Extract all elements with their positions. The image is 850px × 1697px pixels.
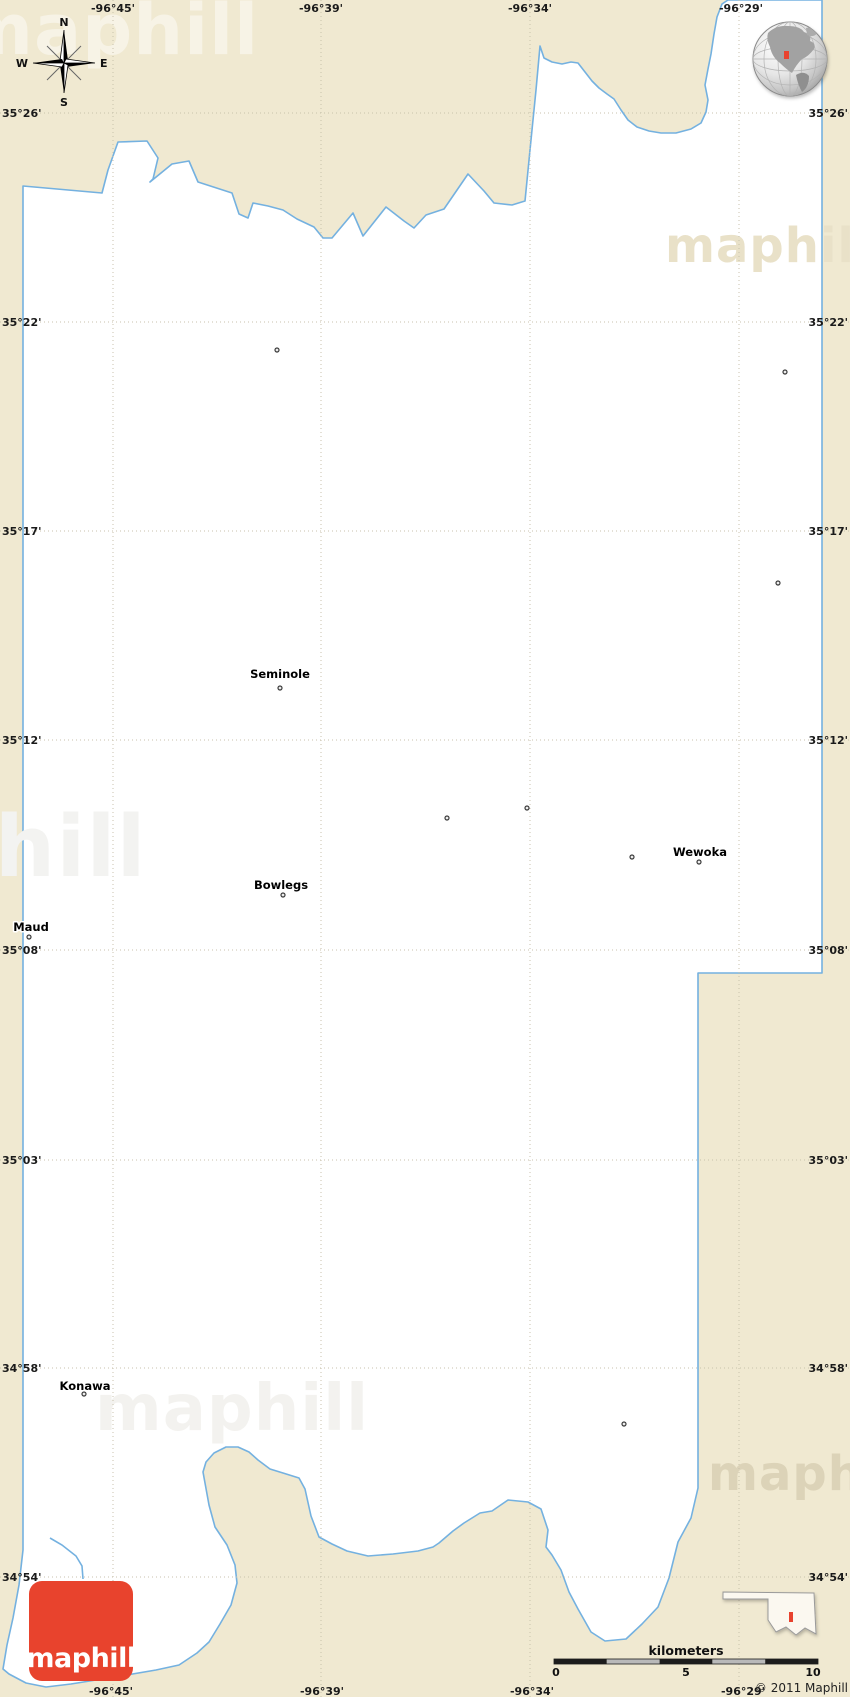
classic-style-simple-map: maphill maphill maphill maphill maphill … — [0, 0, 850, 1697]
scale-bar-tick-label: 10 — [805, 1666, 821, 1679]
town-dot — [445, 816, 449, 820]
coord-label-left: 35°08' — [2, 944, 41, 957]
coord-label-right: 35°08' — [809, 944, 848, 957]
watermark-text: maphill — [0, 798, 147, 897]
city-label: Wewoka — [673, 845, 727, 859]
maphill-logo[interactable]: maphill — [26, 1581, 135, 1681]
town-dot — [622, 1422, 626, 1426]
scale-bar-segment — [554, 1659, 607, 1664]
compass-w-label: W — [16, 57, 28, 70]
globe-locator-icon — [753, 22, 827, 96]
globe-location-marker — [784, 51, 789, 59]
coord-label-left: 35°22' — [2, 316, 41, 329]
coord-label-right: 35°03' — [809, 1154, 848, 1167]
town-dot — [275, 348, 279, 352]
watermark-text: maphill — [665, 218, 850, 274]
city-dot — [27, 935, 31, 939]
scale-bar-tick-label: 0 — [552, 1666, 560, 1679]
watermark-text: maphill — [708, 1446, 850, 1502]
town-dot — [630, 855, 634, 859]
coord-label-left: 35°17' — [2, 525, 41, 538]
scale-bar-segment — [607, 1659, 660, 1664]
city-label: Maud — [13, 920, 49, 934]
scale-bar-segment — [660, 1659, 713, 1664]
coord-label-left: 34°58' — [2, 1362, 41, 1375]
coord-label-left: 35°03' — [2, 1154, 41, 1167]
coord-label-right: 35°22' — [809, 316, 848, 329]
coord-label-left: 35°26' — [2, 107, 41, 120]
compass-e-label: E — [100, 57, 108, 70]
copyright-text: © 2011 Maphill — [755, 1681, 848, 1695]
coord-label-bottom: -96°45' — [89, 1685, 133, 1697]
coord-label-right: 35°17' — [809, 525, 848, 538]
coord-label-top: -96°39' — [299, 2, 343, 15]
coord-label-bottom: -96°39' — [300, 1685, 344, 1697]
town-dot — [783, 370, 787, 374]
city-dot — [281, 893, 285, 897]
scale-bar-segment — [765, 1659, 818, 1664]
compass-s-label: S — [60, 96, 68, 109]
coord-label-left: 34°54' — [2, 1571, 41, 1584]
city-dot — [697, 860, 701, 864]
watermark-text: maphill — [95, 1372, 369, 1446]
coord-label-bottom: -96°34' — [510, 1685, 554, 1697]
compass-n-label: N — [59, 16, 68, 29]
coord-label-top: -96°34' — [508, 2, 552, 15]
inset-location-marker — [789, 1612, 793, 1622]
town-dot — [776, 581, 780, 585]
scale-bar-tick-label: 5 — [682, 1666, 690, 1679]
scale-bar-title: kilometers — [648, 1643, 723, 1658]
town-dot — [525, 806, 529, 810]
map-canvas: maphill maphill maphill maphill maphill … — [0, 0, 850, 1697]
coord-label-left: 35°12' — [2, 734, 41, 747]
maphill-logo-text[interactable]: maphill — [26, 1643, 135, 1674]
city-label: Bowlegs — [254, 878, 308, 892]
coord-label-right: 34°58' — [809, 1362, 848, 1375]
coord-label-right: 34°54' — [809, 1571, 848, 1584]
city-label: Konawa — [60, 1379, 111, 1393]
coord-label-top: -96°29' — [719, 2, 763, 15]
scale-bar-segment — [712, 1659, 765, 1664]
coord-label-right: 35°12' — [809, 734, 848, 747]
coord-label-right: 35°26' — [809, 107, 848, 120]
city-label: Seminole — [250, 667, 310, 681]
city-dot — [278, 686, 282, 690]
coord-label-top: -96°45' — [91, 2, 135, 15]
